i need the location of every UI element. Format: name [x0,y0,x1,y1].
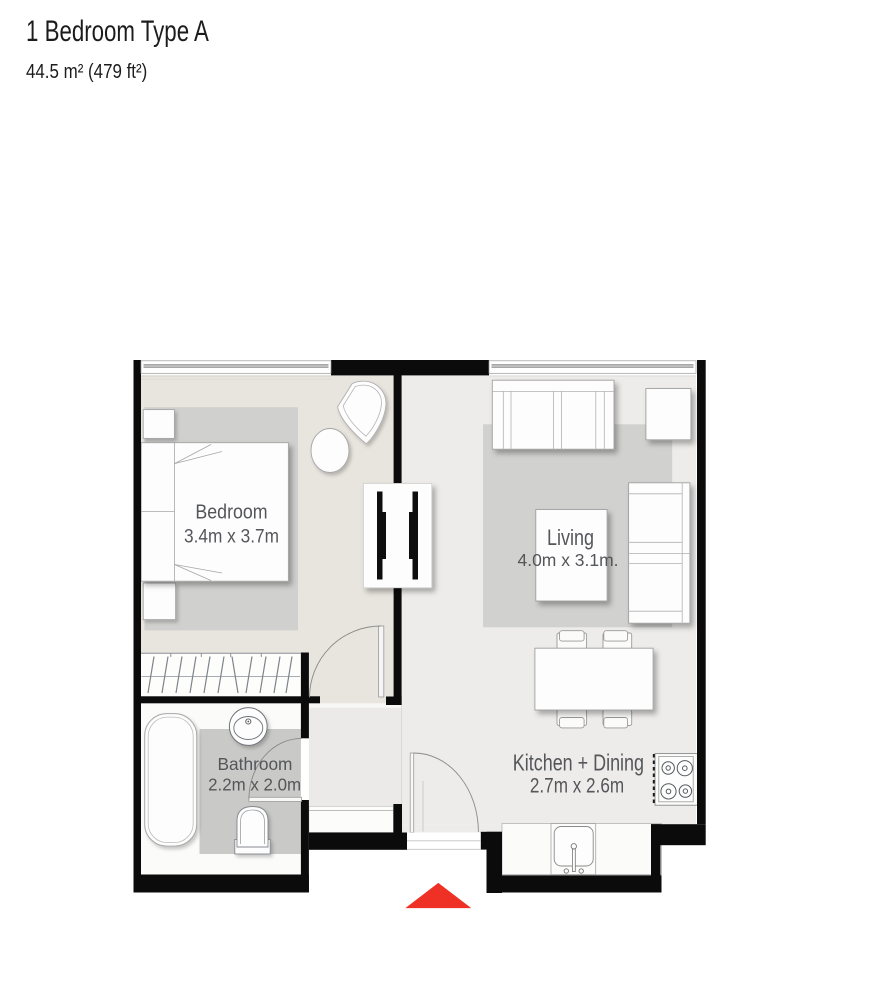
svg-text:1 Bedroom Type A: 1 Bedroom Type A [26,14,209,48]
svg-text:3.4m x 3.7m: 3.4m x 3.7m [184,524,279,546]
svg-text:Bedroom: Bedroom [195,501,267,523]
svg-text:2.2m x 2.0m: 2.2m x 2.0m [208,775,301,794]
svg-text:Living: Living [547,526,594,550]
svg-text:2.7m x 2.6m: 2.7m x 2.6m [530,775,624,798]
svg-text:Kitchen + Dining: Kitchen + Dining [513,750,644,776]
svg-text:Bathroom: Bathroom [218,754,293,774]
svg-text:44.5 m² (479 ft²): 44.5 m² (479 ft²) [26,60,147,83]
svg-text:4.0m x 3.1m.: 4.0m x 3.1m. [518,550,619,570]
